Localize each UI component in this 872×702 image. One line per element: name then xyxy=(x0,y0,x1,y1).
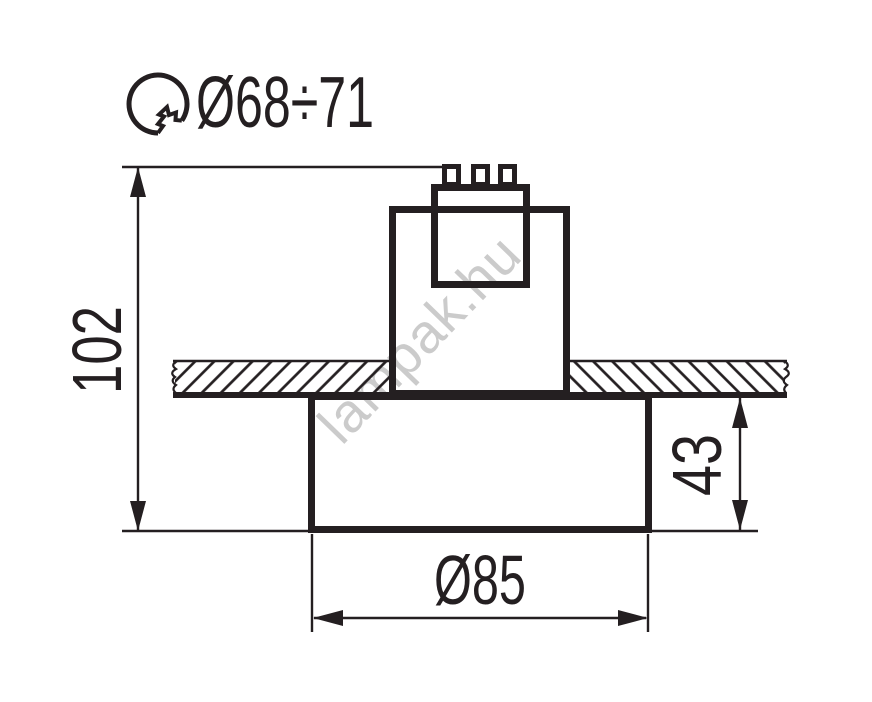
technical-drawing-canvas: lampak.hu 102 43 xyxy=(0,0,872,702)
arrowhead-left xyxy=(313,610,343,626)
ceiling-hatch-left xyxy=(175,362,391,393)
arrowhead-down xyxy=(732,500,748,530)
downlight-dimension-diagram: lampak.hu 102 43 xyxy=(0,0,872,702)
ceiling-slab-left xyxy=(172,361,392,395)
prong-3 xyxy=(501,167,515,185)
prong-1 xyxy=(445,167,459,185)
hole-saw-icon xyxy=(129,75,187,133)
dimension-label-43: 43 xyxy=(658,434,736,496)
terminal-prongs xyxy=(445,167,515,185)
dimension-85: Ø85 xyxy=(312,534,648,632)
arrowhead-up xyxy=(130,167,146,197)
dimension-43: 43 xyxy=(652,398,758,531)
arrowhead-down xyxy=(130,501,146,531)
watermark-text: lampak.hu xyxy=(306,223,533,455)
ceiling-hatch-right xyxy=(567,362,785,393)
arrowhead-up xyxy=(732,398,748,428)
cutout-diameter-label: Ø68÷71 xyxy=(196,63,374,143)
dimension-label-102: 102 xyxy=(58,306,136,394)
ceiling-slab-right xyxy=(567,361,789,395)
cutout-spec: Ø68÷71 xyxy=(129,63,374,143)
prong-2 xyxy=(474,167,488,185)
dimension-label-85: Ø85 xyxy=(434,541,526,619)
arrowhead-right xyxy=(618,610,648,626)
hole-saw-teeth xyxy=(158,107,182,133)
